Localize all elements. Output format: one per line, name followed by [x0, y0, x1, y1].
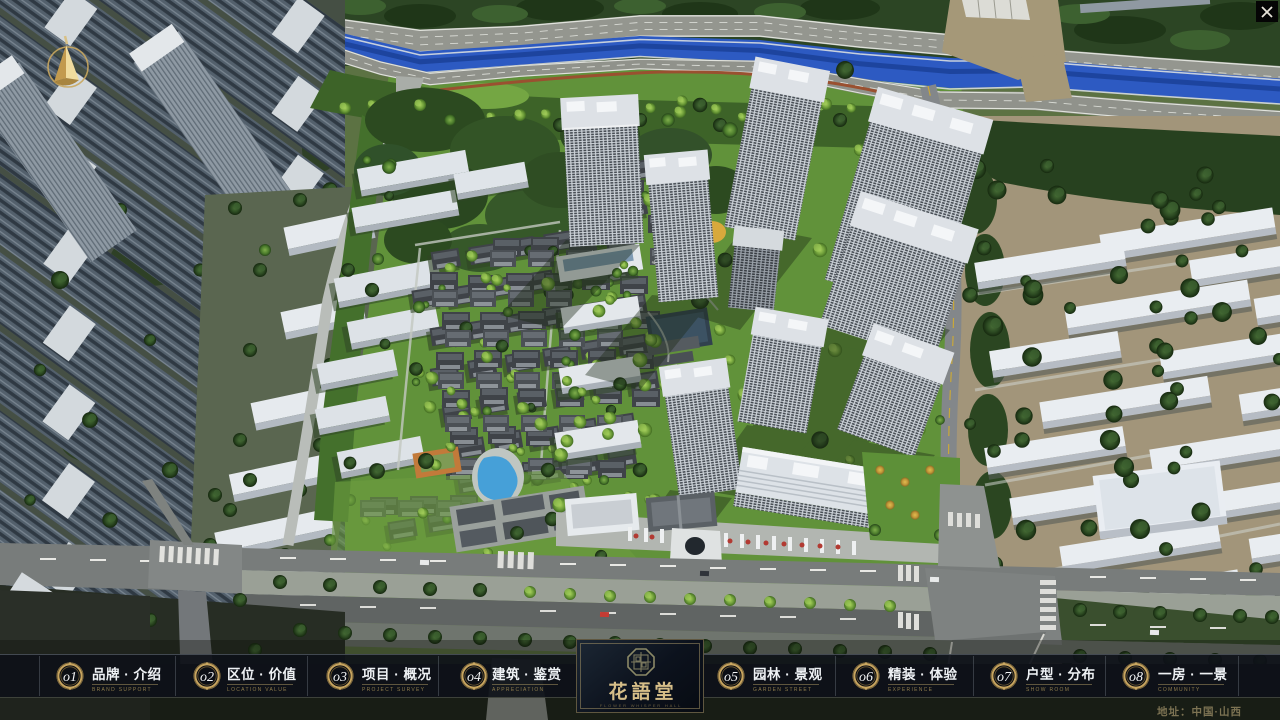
- svg-text:o1: o1: [63, 670, 77, 685]
- svg-text:o3: o3: [333, 670, 347, 685]
- svg-text:o5: o5: [724, 670, 738, 685]
- svg-text:o4: o4: [467, 670, 481, 685]
- svg-text:o2: o2: [200, 670, 214, 685]
- svg-text:o6: o6: [859, 670, 873, 685]
- svg-text:o8: o8: [1129, 670, 1143, 685]
- svg-text:o7: o7: [997, 670, 1012, 685]
